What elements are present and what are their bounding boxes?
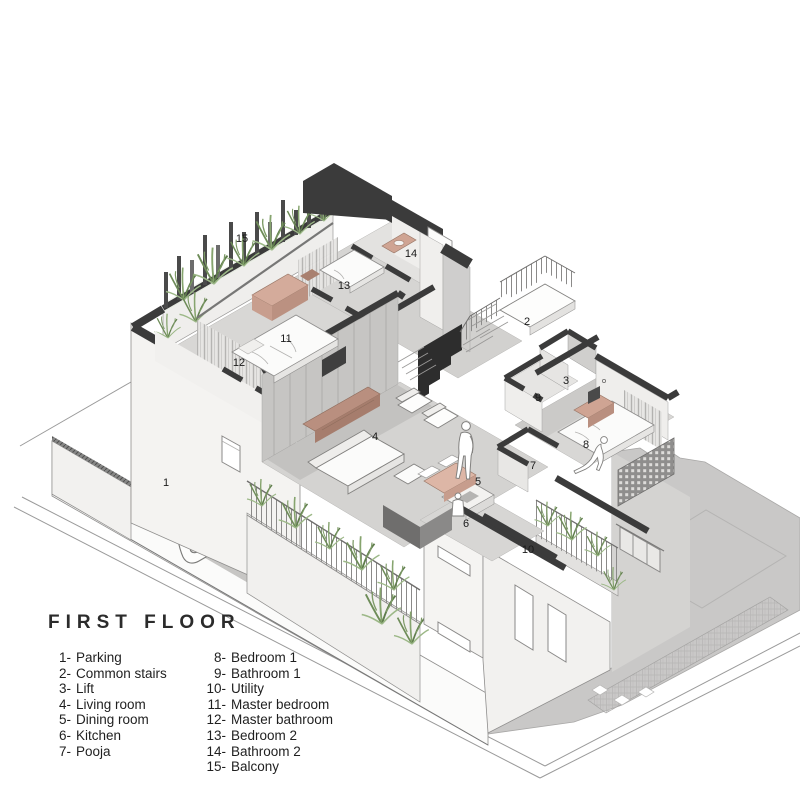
legend-num: 5- <box>54 712 71 728</box>
marker-dining-room: 5 <box>475 476 481 488</box>
marker-bedroom-2: 13 <box>338 280 350 292</box>
legend-label: Lift <box>76 681 94 697</box>
legend-label: Bedroom 1 <box>231 650 297 666</box>
legend-num: 6- <box>54 728 71 744</box>
legend-label: Common stairs <box>76 666 167 682</box>
legend-column-2: 8-Bedroom 19-Bathroom 110-Utility11-Mast… <box>202 650 392 775</box>
legend-label: Balcony <box>231 759 279 775</box>
legend-label: Dining room <box>76 712 149 728</box>
legend-item-bathroom-2: 14-Bathroom 2 <box>202 744 392 760</box>
legend-num: 8- <box>202 650 226 666</box>
legend-num: 9- <box>202 666 226 682</box>
marker-kitchen: 6 <box>463 518 469 530</box>
legend-label: Living room <box>76 697 146 713</box>
legend-item-master-bedroom: 11-Master bedroom <box>202 697 392 713</box>
marker-living-room: 4 <box>372 431 378 443</box>
legend-num: 4- <box>54 697 71 713</box>
legend-item-pooja: 7-Pooja <box>54 744 204 760</box>
legend-num: 10- <box>202 681 226 697</box>
legend-num: 12- <box>202 712 226 728</box>
legend-item-balcony: 15-Balcony <box>202 759 392 775</box>
marker-parking: 1 <box>163 477 169 489</box>
page-title: FIRST FLOOR <box>48 612 241 634</box>
legend-num: 13- <box>202 728 226 744</box>
legend-label: Kitchen <box>76 728 121 744</box>
legend-num: 3- <box>54 681 71 697</box>
legend-column-1: 1-Parking2-Common stairs3-Lift4-Living r… <box>54 650 204 759</box>
marker-bedroom-1: 8 <box>583 439 589 451</box>
legend-item-common-stairs: 2-Common stairs <box>54 666 204 682</box>
marker-pooja: 7 <box>530 460 536 472</box>
legend-label: Master bathroom <box>231 712 333 728</box>
legend-item-utility: 10-Utility <box>202 681 392 697</box>
legend-num: 1- <box>54 650 71 666</box>
legend-item-parking: 1-Parking <box>54 650 204 666</box>
legend-item-kitchen: 6-Kitchen <box>54 728 204 744</box>
marker-master-bedroom: 11 <box>280 333 291 345</box>
legend-label: Bathroom 1 <box>231 666 301 682</box>
legend-item-master-bathroom: 12-Master bathroom <box>202 712 392 728</box>
marker-common-stairs: 2 <box>524 316 530 328</box>
legend-item-bedroom-1: 8-Bedroom 1 <box>202 650 392 666</box>
marker-utility: 10 <box>522 544 534 556</box>
legend-label: Utility <box>231 681 264 697</box>
architectural-sheet: 123456789101112131415 FIRST FLOOR 1-Park… <box>0 0 800 800</box>
legend-label: Bathroom 2 <box>231 744 301 760</box>
legend-num: 15- <box>202 759 226 775</box>
legend-item-dining-room: 5-Dining room <box>54 712 204 728</box>
marker-lift: 3 <box>563 375 569 387</box>
marker-bathroom-2: 14 <box>405 248 417 260</box>
legend-label: Parking <box>76 650 122 666</box>
legend-label: Bedroom 2 <box>231 728 297 744</box>
marker-balcony: 15 <box>236 233 248 245</box>
marker-master-bathroom: 12 <box>233 357 245 369</box>
legend-item-living-room: 4-Living room <box>54 697 204 713</box>
legend-num: 11- <box>202 697 226 713</box>
legend-label: Pooja <box>76 744 111 760</box>
legend-item-bedroom-2: 13-Bedroom 2 <box>202 728 392 744</box>
legend-num: 14- <box>202 744 226 760</box>
marker-bathroom-1: 9 <box>535 392 541 404</box>
legend-num: 2- <box>54 666 71 682</box>
legend-num: 7- <box>54 744 71 760</box>
legend-item-lift: 3-Lift <box>54 681 204 697</box>
legend-item-bathroom-1: 9-Bathroom 1 <box>202 666 392 682</box>
legend-label: Master bedroom <box>231 697 329 713</box>
